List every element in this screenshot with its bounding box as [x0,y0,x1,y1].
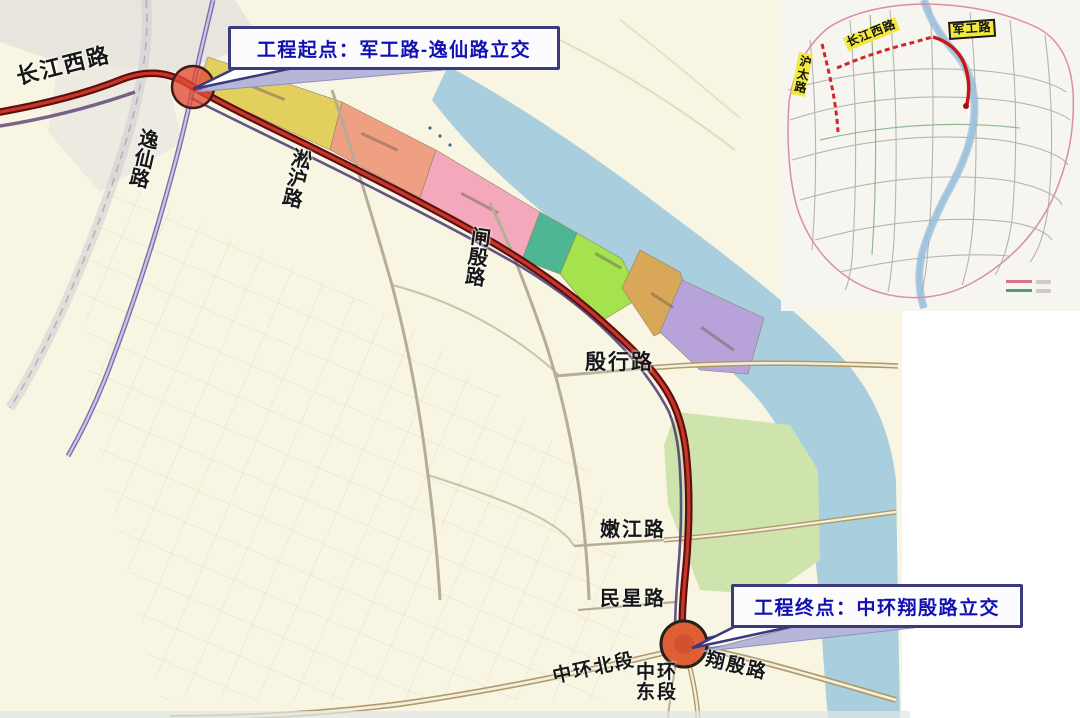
road-label-minxing-road: 民星路 [600,589,666,610]
callout-start-text: 工程起点：军工路-逸仙路立交 [257,35,531,62]
road-label-yinhang-road: 殷行路 [585,351,654,373]
inset-legend-item-0 [1006,277,1051,286]
callout-start: 工程起点：军工路-逸仙路立交 [228,26,560,70]
inset-map [781,0,1080,311]
inset-legend-swatch-0 [1006,280,1032,283]
road-label-middle-ring-east-section: 中环 东段 [636,663,678,703]
screenshot-root: 长江西路逸仙路淞沪路闸殷路殷行路嫩江路民星路中环北段中环 东段翔殷路 长江西路军… [0,0,1080,718]
bottom-edge-strip [0,711,910,718]
callout-end: 工程终点：中环翔殷路立交 [731,584,1023,628]
callout-end-text: 工程终点：中环翔殷路立交 [754,593,1000,620]
inset-legend-item-1 [1006,286,1051,295]
inset-legend [1006,277,1051,295]
road-label-nenjiang-road: 嫩江路 [600,520,666,541]
inset-legend-label-0 [1036,280,1051,284]
end-interchange-core [674,634,694,654]
inset-legend-label-1 [1036,289,1051,293]
inset-legend-swatch-1 [1006,289,1032,292]
inset-label-jungong-road: 军工路 [948,19,996,40]
